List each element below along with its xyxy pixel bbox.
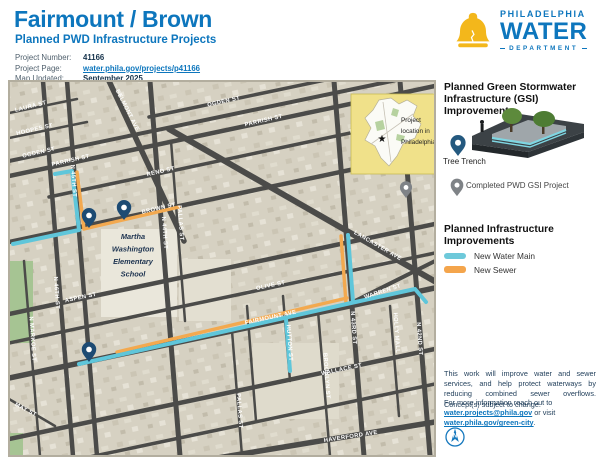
meta-value: 41166 (83, 53, 104, 62)
email-link[interactable]: water.projects@phila.gov (444, 408, 532, 417)
school-label: School (121, 270, 147, 279)
svg-text:N: N (453, 434, 457, 440)
contact-note: For more information reach out to water.… (444, 398, 596, 429)
meta-row: Project Number:41166 (15, 53, 200, 62)
school-label: Elementary (113, 257, 154, 266)
infrastructure-heading: Planned Infrastructure Improvements (444, 224, 594, 248)
school-label: Washington (112, 245, 155, 254)
logo-water-text: WATER (500, 20, 587, 44)
project-page-link[interactable]: water.phila.gov/projects/p41166 (83, 64, 200, 73)
page-subtitle: Planned PWD Infrastructure Projects (15, 34, 216, 46)
new-sewer-swatch (444, 266, 466, 273)
tree-trench-pin-icon (446, 132, 470, 158)
completed-gsi-label: Completed PWD GSI Project (466, 181, 569, 190)
water-main-swatch (444, 253, 466, 260)
project-map: LAURA STHOOPES STOGDEN STOGDEN STPARRISH… (8, 80, 436, 457)
legend-water-main: New Water Main (444, 251, 535, 261)
project-location-star: ★ (378, 134, 387, 145)
inset-label: Philadelphia (401, 139, 435, 146)
pwd-project-map-page: Fairmount / Brown Planned PWD Infrastruc… (0, 0, 600, 463)
liberty-bell-icon (452, 8, 494, 54)
meta-label: Project Number: (15, 53, 83, 62)
inset-label: Project (401, 117, 421, 124)
tree-trench-label: Tree Trench (443, 157, 486, 166)
completed-gsi-pin-icon (447, 176, 467, 198)
page-title: Fairmount / Brown (14, 6, 212, 33)
meta-label: Project Page: (15, 64, 83, 73)
meta-row: Project Page:water.phila.gov/projects/p4… (15, 64, 200, 73)
pwd-logo: PHILADELPHIA WATER DEPARTMENT (452, 8, 587, 54)
legend-new-sewer: New Sewer (444, 265, 516, 275)
philadelphia-inset-map: ★Projectlocation inPhiladelphia (351, 94, 435, 174)
north-compass-icon: N (444, 426, 466, 448)
school-label: Martha (121, 232, 145, 241)
tree-trench-illustration (466, 106, 588, 160)
inset-label: location in (401, 128, 430, 135)
logo-dept-row: DEPARTMENT (500, 46, 587, 52)
